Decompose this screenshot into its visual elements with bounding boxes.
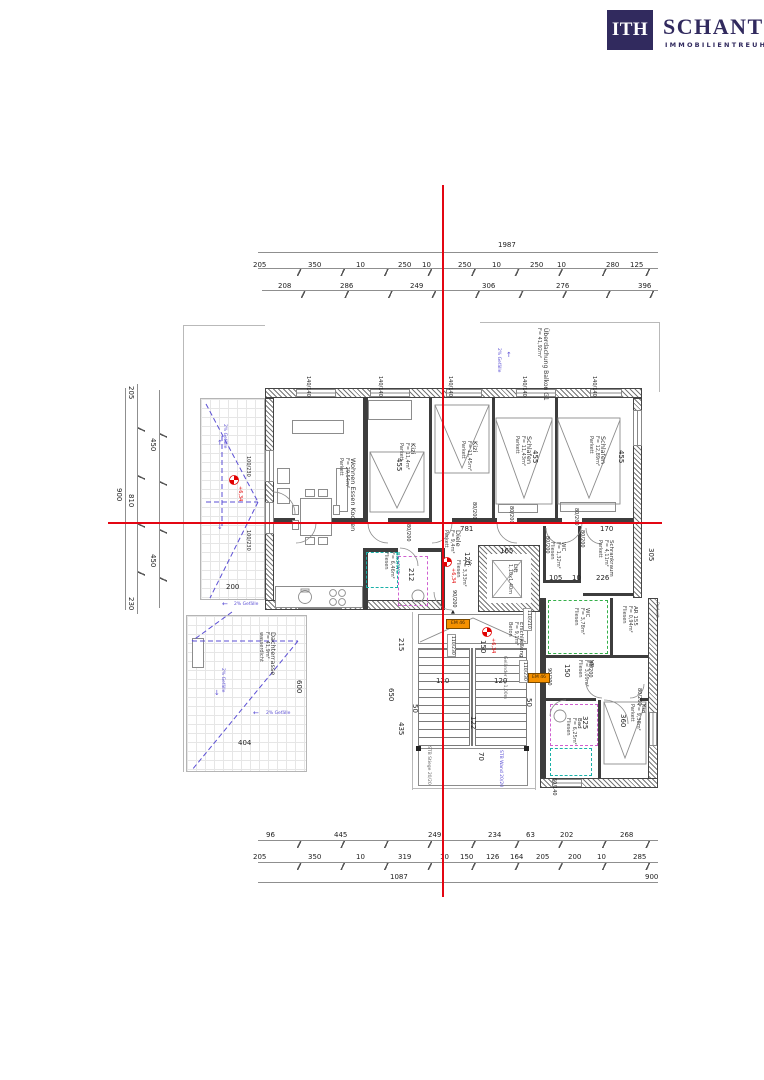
level-mark: +6,34 xyxy=(450,568,455,583)
window-label: 140/140 xyxy=(377,376,382,397)
terrace-dachterrasse xyxy=(186,615,307,772)
slope-note: 2% Gefälle xyxy=(220,668,225,692)
dim-215: 215 xyxy=(397,638,404,651)
dim: 150 xyxy=(460,854,473,861)
slope-note: 2% Gefälle xyxy=(266,712,290,717)
stair-boundary-east xyxy=(535,612,536,790)
dim: 285 xyxy=(633,854,646,861)
wall-wing-west xyxy=(540,598,546,778)
room-label-wc-b: WCF= 3,78m²Fliesen xyxy=(572,608,590,635)
window-east-wing xyxy=(649,712,657,746)
door-label: 80/200 xyxy=(508,506,513,524)
wall-wc2-south xyxy=(546,655,613,658)
wall-bath-north-2 xyxy=(418,548,445,552)
dim: 202 xyxy=(560,832,573,839)
dim: 125 xyxy=(630,262,643,269)
dim-404-terrace: 404 xyxy=(238,740,251,747)
dim-total-top: 1987 xyxy=(498,242,516,249)
equipment-size-label: 110/230 xyxy=(519,660,528,683)
dining-table xyxy=(300,498,332,536)
dim-chain-line xyxy=(258,862,658,870)
sideboard xyxy=(292,420,344,434)
dim: 96 xyxy=(266,832,275,839)
dim: 126 xyxy=(486,854,499,861)
dim-chain-line xyxy=(258,252,658,253)
room-label-kizi-c: KiziF= 9,38m²Parkett xyxy=(628,704,646,731)
room-label-badwc: Bad/WCF= 6,46m²Fliesen xyxy=(382,552,400,579)
dim: 250 xyxy=(458,262,471,269)
dim: 445 xyxy=(334,832,347,839)
room-label-bad: BadF= 6,25m²Fliesen xyxy=(564,718,582,745)
window-west-2 xyxy=(265,502,274,534)
wall-bad-east xyxy=(598,700,601,778)
dim-150-stair: 150 xyxy=(479,640,486,653)
dim: 205 xyxy=(253,854,266,861)
door-label-90: 90/200 xyxy=(451,590,456,608)
arrow-left-icon: ← xyxy=(253,710,259,717)
dim-325-bad: 325 xyxy=(581,716,588,729)
room-label-dachterrasse: DachterrasseF= 41,9m²wasserdicht xyxy=(257,632,276,675)
wall-wc-west xyxy=(543,526,546,582)
dim-170: 170 xyxy=(600,526,613,533)
floor-plan-sheet: ITH SCHANTL IMMOBILIENTREUHAND xyxy=(0,0,764,1080)
door-label: 80/200 xyxy=(544,536,549,554)
dim: 268 xyxy=(620,832,633,839)
equipment-badge: EM 46 xyxy=(446,619,470,629)
dim: 276 xyxy=(556,283,569,290)
room-label-kizi-b: KiziF= 11,45m²Parkett xyxy=(459,441,478,471)
dim: 63 xyxy=(526,832,535,839)
dim: 350 xyxy=(308,262,321,269)
tub-bad xyxy=(550,748,592,776)
dim-435: 435 xyxy=(397,722,404,735)
room-label-diele: DieleF= 9,4m²Parkett xyxy=(442,530,461,553)
dim: 10 xyxy=(422,262,431,269)
axis-line-vertical xyxy=(442,185,444,897)
wall-kizi-a-b xyxy=(429,397,432,520)
dim-total-bottom-right: 900 xyxy=(645,874,658,881)
roof-edge-top-left xyxy=(183,325,265,326)
dim: 200 xyxy=(568,854,581,861)
level-mark: +6,34 xyxy=(490,638,495,653)
equipment-size-label: 110/210 xyxy=(523,608,532,631)
dim-total-bottom-left: 1087 xyxy=(390,874,408,881)
dim-10: 10 xyxy=(572,575,581,582)
logo-company-name: SCHANTL xyxy=(663,14,764,40)
dim: 164 xyxy=(510,854,523,861)
window-north-2 xyxy=(370,389,410,397)
dim-70: 70 xyxy=(477,752,484,761)
stair-landing-bottom xyxy=(418,748,528,786)
wardrobe-kizi-a xyxy=(368,400,412,420)
parkett-note: Parkett xyxy=(654,602,659,618)
plan-linework xyxy=(0,0,764,1080)
wall-east-wing xyxy=(648,598,658,788)
dim-781: 781 xyxy=(460,526,473,533)
dim-chain-line-v xyxy=(137,384,145,614)
dim: 205 xyxy=(536,854,549,861)
roof-edge-left xyxy=(183,325,184,772)
dim-50-right: 50 xyxy=(525,698,532,707)
window-north-1 xyxy=(296,389,336,397)
dim-120-diele: 120 xyxy=(463,552,470,565)
room-label-balkon: Überdachung Balkon G1F= 41,92m² xyxy=(535,328,548,401)
logo-subtitle: IMMOBILIENTREUHAND xyxy=(665,41,764,49)
wall-ar-south xyxy=(613,655,648,658)
dim: 319 xyxy=(398,854,411,861)
equipment-size-label: 110/230 xyxy=(447,634,456,657)
door-label: 80/200 xyxy=(587,660,592,678)
wall-wc2-east xyxy=(610,598,613,658)
chair xyxy=(305,489,315,497)
wall-vr2-south-1 xyxy=(546,698,596,701)
slope-note: 2% Gefälle xyxy=(496,348,501,372)
wall-schlafen-a-b xyxy=(555,397,558,520)
stair-boundary-west xyxy=(412,612,413,790)
arrow-left-icon: ← xyxy=(222,601,228,608)
balcony-roof-edge-right xyxy=(659,322,660,392)
room-label-wohnen: Wohnen Essen KochenF= 29,54m²Parkett xyxy=(337,458,356,531)
dim: 810 xyxy=(127,494,134,507)
dim-total-left: 900 xyxy=(115,488,122,501)
terrace-upper xyxy=(200,398,265,600)
armchair xyxy=(277,488,290,504)
axis-line-horizontal xyxy=(108,522,662,524)
stair-flight-left xyxy=(418,648,470,746)
dim-chain-line xyxy=(258,268,658,276)
dim: 10 xyxy=(492,262,501,269)
window-east-1 xyxy=(633,410,642,446)
dim-455-schlafen-a: 455 xyxy=(531,450,538,463)
room-label-schlafen-b: SchlafenF= 12,89m²Parkett xyxy=(587,436,606,466)
dim: 234 xyxy=(488,832,501,839)
dim-chain-line-v xyxy=(125,388,126,610)
window-west-1 xyxy=(265,450,274,482)
window-label: 100/230 xyxy=(245,530,250,551)
arrow-up-icon: ↑ xyxy=(506,352,512,359)
dim-chain-line xyxy=(262,290,658,298)
wall-schrank-south xyxy=(583,593,633,596)
dim: 306 xyxy=(482,283,495,290)
dim-chain-line xyxy=(258,882,658,883)
window-label: 100/230 xyxy=(245,456,250,477)
dim: 396 xyxy=(638,283,651,290)
dim-650: 650 xyxy=(387,688,394,701)
cabinet-schlafen-a xyxy=(498,504,538,513)
room-label-schlafen-a: SchlafenF= 11,43m²Parkett xyxy=(513,436,532,466)
dim-105: 105 xyxy=(549,575,562,582)
dim-chain-line-v xyxy=(159,390,167,608)
dim: 10 xyxy=(597,854,606,861)
logo-ith-icon: ITH xyxy=(607,10,653,50)
window-label: 140/140 xyxy=(591,376,596,397)
room-label-wc-a: WCF= 1,32m²Fliesen xyxy=(548,542,566,569)
kitchen-counter xyxy=(275,586,363,608)
dim: 450 xyxy=(149,438,156,451)
dim: 249 xyxy=(428,832,441,839)
dim-226: 226 xyxy=(596,575,609,582)
stb-wand-note: STB Wand 20/20 xyxy=(498,750,503,787)
dim-165-lift: 165 xyxy=(500,548,513,555)
door-label: 80/200 xyxy=(579,530,584,548)
dim-305: 305 xyxy=(647,548,654,561)
dim-600-terrace: 600 xyxy=(295,680,302,693)
chair xyxy=(318,537,328,545)
planter-box xyxy=(192,638,204,668)
dim-360-kizi: 360 xyxy=(619,714,626,727)
chair xyxy=(292,505,299,515)
level-mark: +6,34 xyxy=(237,486,242,501)
dim-455-kizi: 455 xyxy=(395,458,402,471)
dim-455-schlafen-b: 455 xyxy=(617,450,624,463)
dim: 350 xyxy=(308,854,321,861)
window-label: 60/140 xyxy=(551,778,556,796)
wall-kizi-schlafen xyxy=(492,397,495,520)
dim: 286 xyxy=(340,283,353,290)
dim: 250 xyxy=(398,262,411,269)
door-label: 80/200 xyxy=(471,502,476,520)
dim-150-vr: 150 xyxy=(563,664,570,677)
stair-divider xyxy=(471,648,473,746)
dim: 10 xyxy=(557,262,566,269)
room-label-lift: Lift1,10x1,40m xyxy=(506,564,518,594)
dim-212: 212 xyxy=(407,568,414,581)
dim-chain-line xyxy=(258,840,658,848)
cabinet-schlafen-b xyxy=(560,502,616,512)
dim: 250 xyxy=(530,262,543,269)
stair-column-right xyxy=(524,746,529,751)
armchair xyxy=(277,468,290,484)
dim: 280 xyxy=(606,262,619,269)
chair xyxy=(305,537,315,545)
stair-boundary-south xyxy=(412,788,536,789)
dim: 10 xyxy=(356,262,365,269)
arrow-down-icon: ↓ xyxy=(217,524,223,531)
dim: 205 xyxy=(127,386,134,399)
dim: 208 xyxy=(278,283,291,290)
window-label: 140/140 xyxy=(305,376,310,397)
balcony-roof-edge-top xyxy=(480,322,660,323)
room-label-erschliessung: ErschließungF= 9,1m²Beton xyxy=(506,622,524,657)
triangle-marker-icon: ▲ xyxy=(451,610,455,615)
dim: 10 xyxy=(356,854,365,861)
dim-50-left: 50 xyxy=(411,704,418,713)
dim: 249 xyxy=(410,283,423,290)
window-label: 140/140 xyxy=(521,376,526,397)
equipment-badge: EM 46 xyxy=(528,673,550,683)
arrow-up-icon: ↑ xyxy=(217,440,223,447)
room-label-ar: AR 155F= 0,94m²Fliesen xyxy=(620,606,638,633)
arrow-down-icon: ↓ xyxy=(214,690,220,697)
stair-column-left xyxy=(416,746,421,751)
dim-122: 122 xyxy=(469,716,476,729)
door-label: 80/200 xyxy=(636,688,641,706)
dim: 230 xyxy=(127,597,134,610)
slope-note: 2% Gefälle xyxy=(234,603,258,608)
chair xyxy=(318,489,328,497)
stb-stiege-note: STB Stiege 20/20 xyxy=(426,746,431,785)
dim: 450 xyxy=(149,554,156,567)
dim-200-terrace: 200 xyxy=(226,584,239,591)
railing-note: Geländer h=1,00m xyxy=(502,656,507,699)
dim: 205 xyxy=(253,262,266,269)
window-label: 140/140 xyxy=(447,376,452,397)
room-label-schrankraum: SchrankraumF= 4,11m²Parkett xyxy=(596,540,614,577)
door-label: 80/200 xyxy=(405,524,410,542)
